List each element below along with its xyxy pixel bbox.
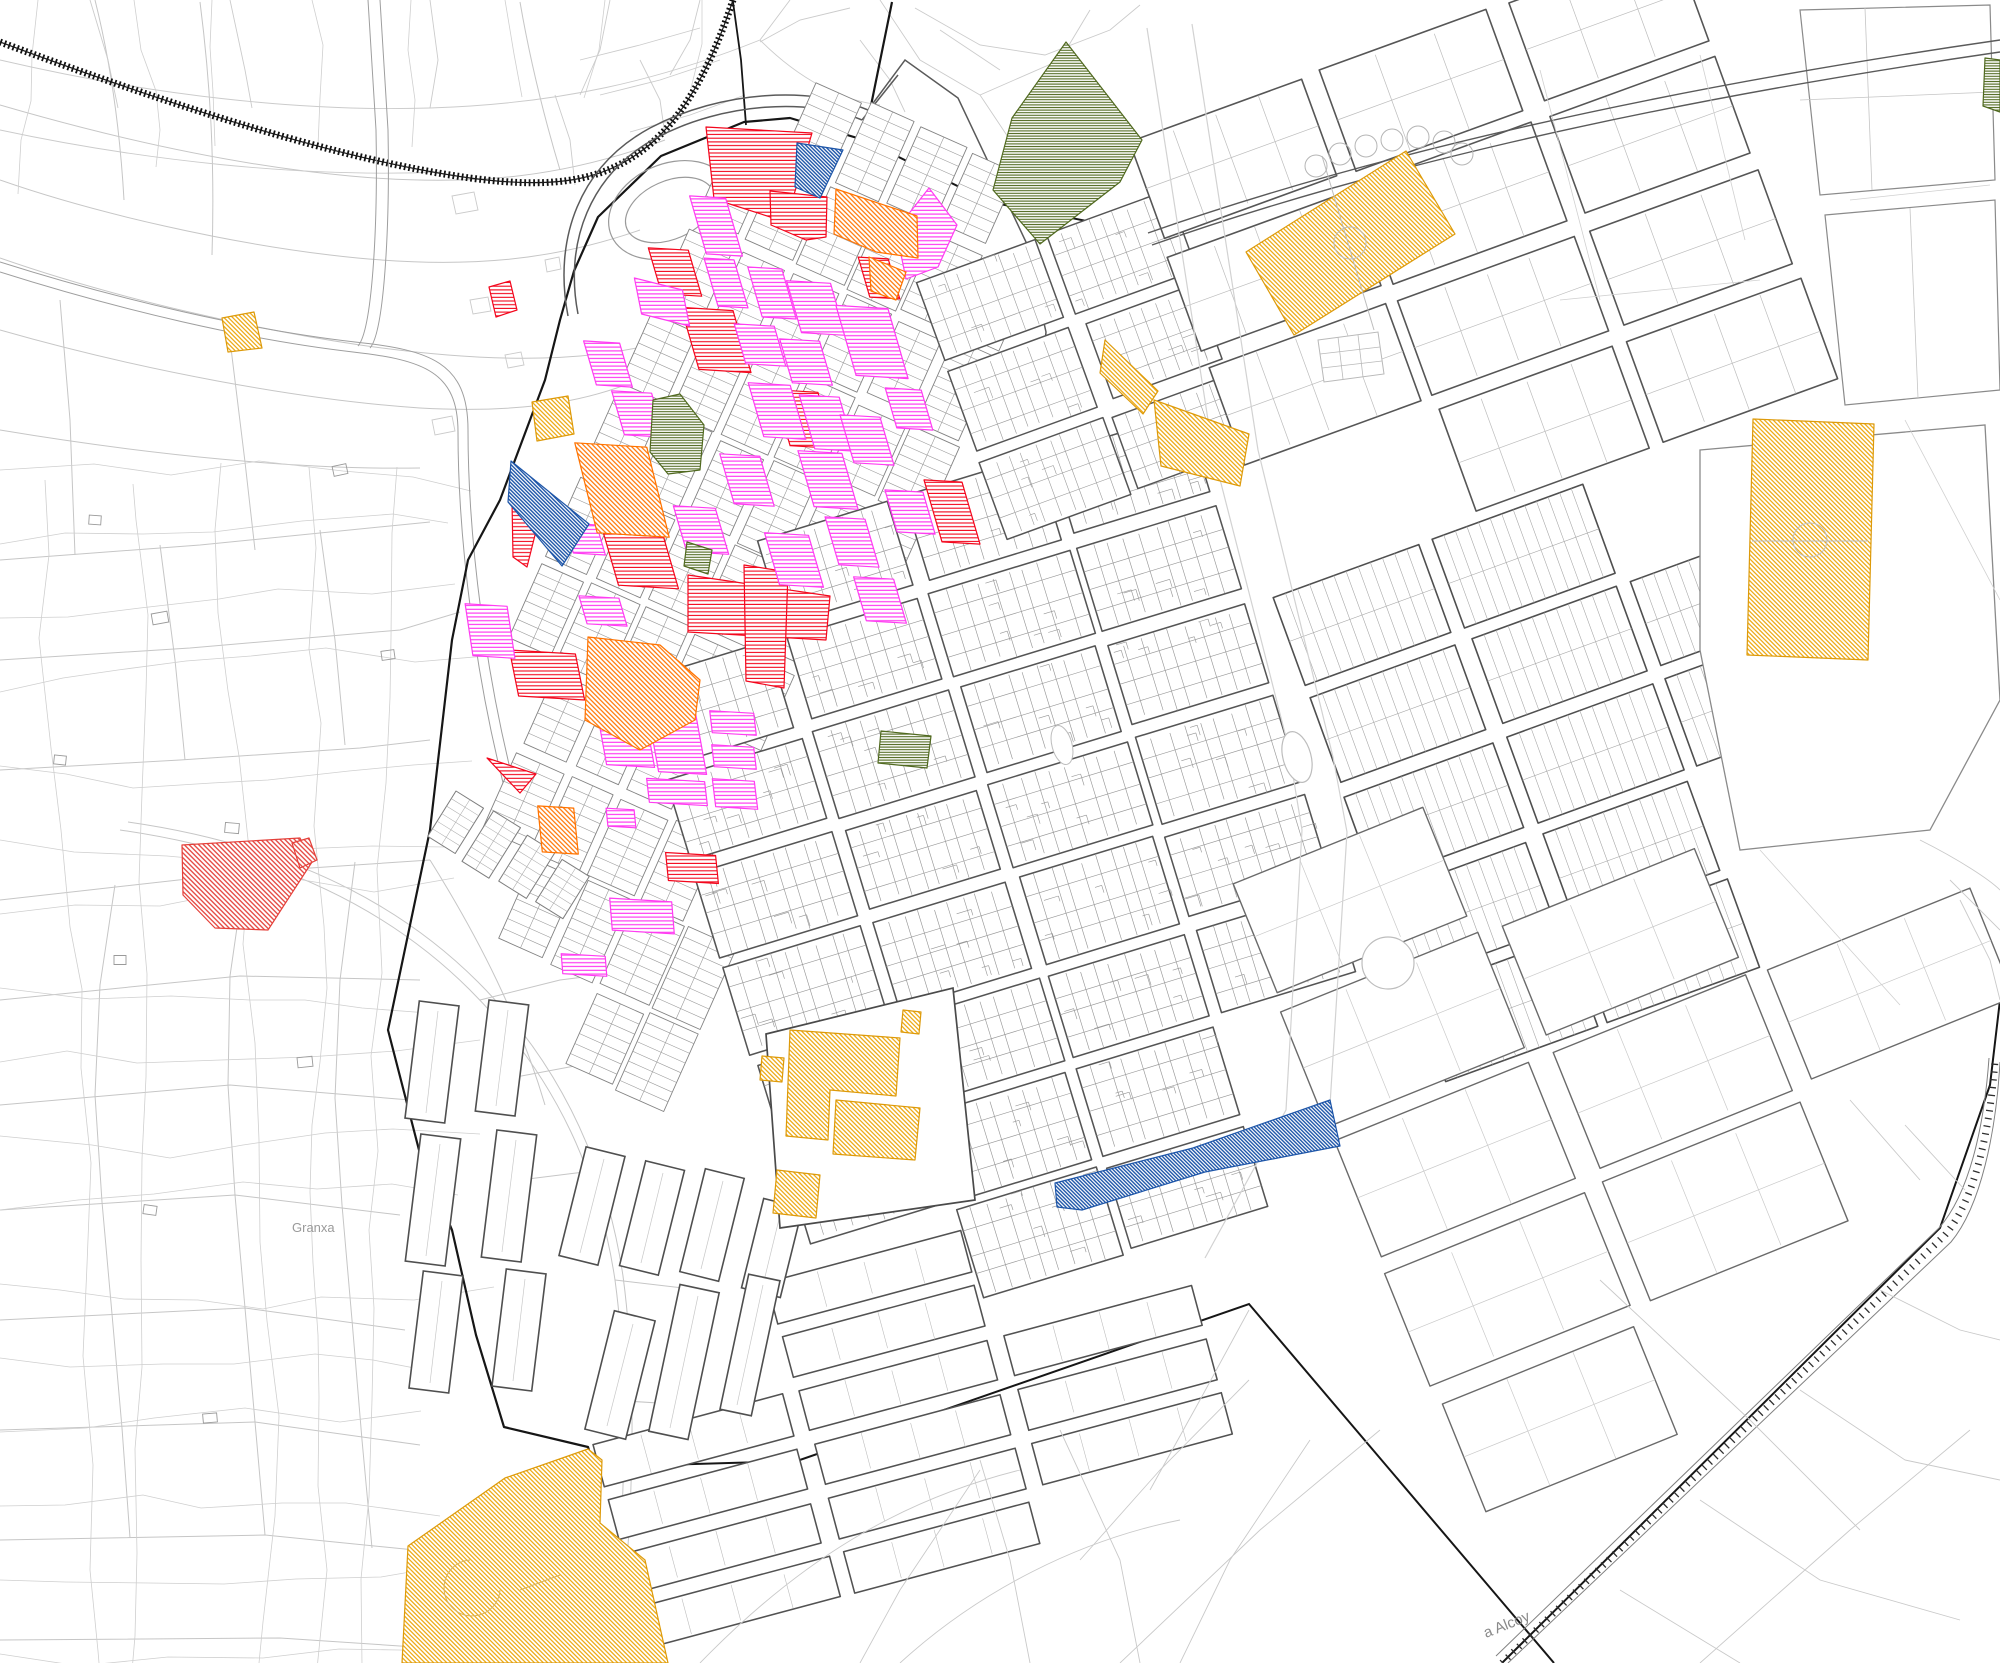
svg-text:Granxa: Granxa	[292, 1220, 335, 1235]
